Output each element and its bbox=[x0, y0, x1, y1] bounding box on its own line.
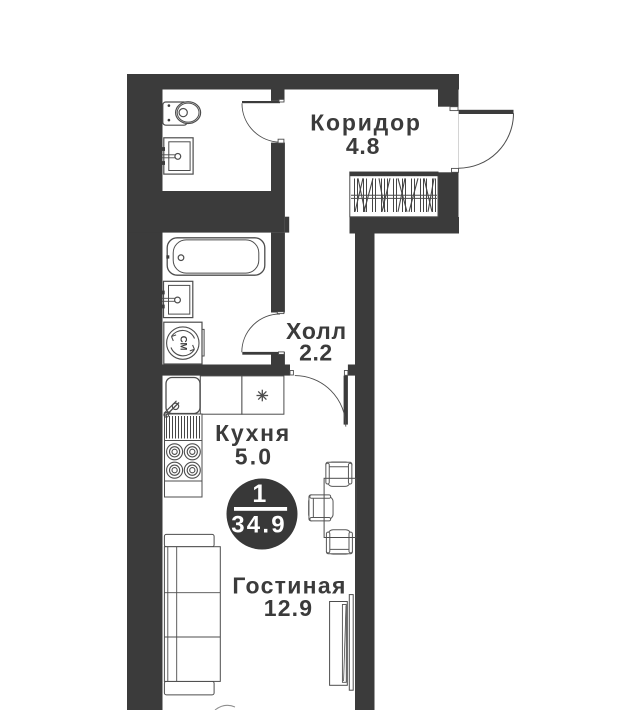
svg-text:1: 1 bbox=[252, 480, 266, 508]
svg-text:34.9: 34.9 bbox=[231, 512, 287, 539]
svg-text:4.8: 4.8 bbox=[346, 133, 380, 159]
svg-text:Кухня: Кухня bbox=[215, 420, 291, 446]
svg-text:5.0: 5.0 bbox=[235, 443, 274, 469]
svg-text:Коридор: Коридор bbox=[310, 109, 422, 135]
svg-text:2.2: 2.2 bbox=[299, 340, 332, 366]
svg-text:СМ: СМ bbox=[177, 336, 188, 351]
svg-text:12.9: 12.9 bbox=[264, 595, 314, 621]
